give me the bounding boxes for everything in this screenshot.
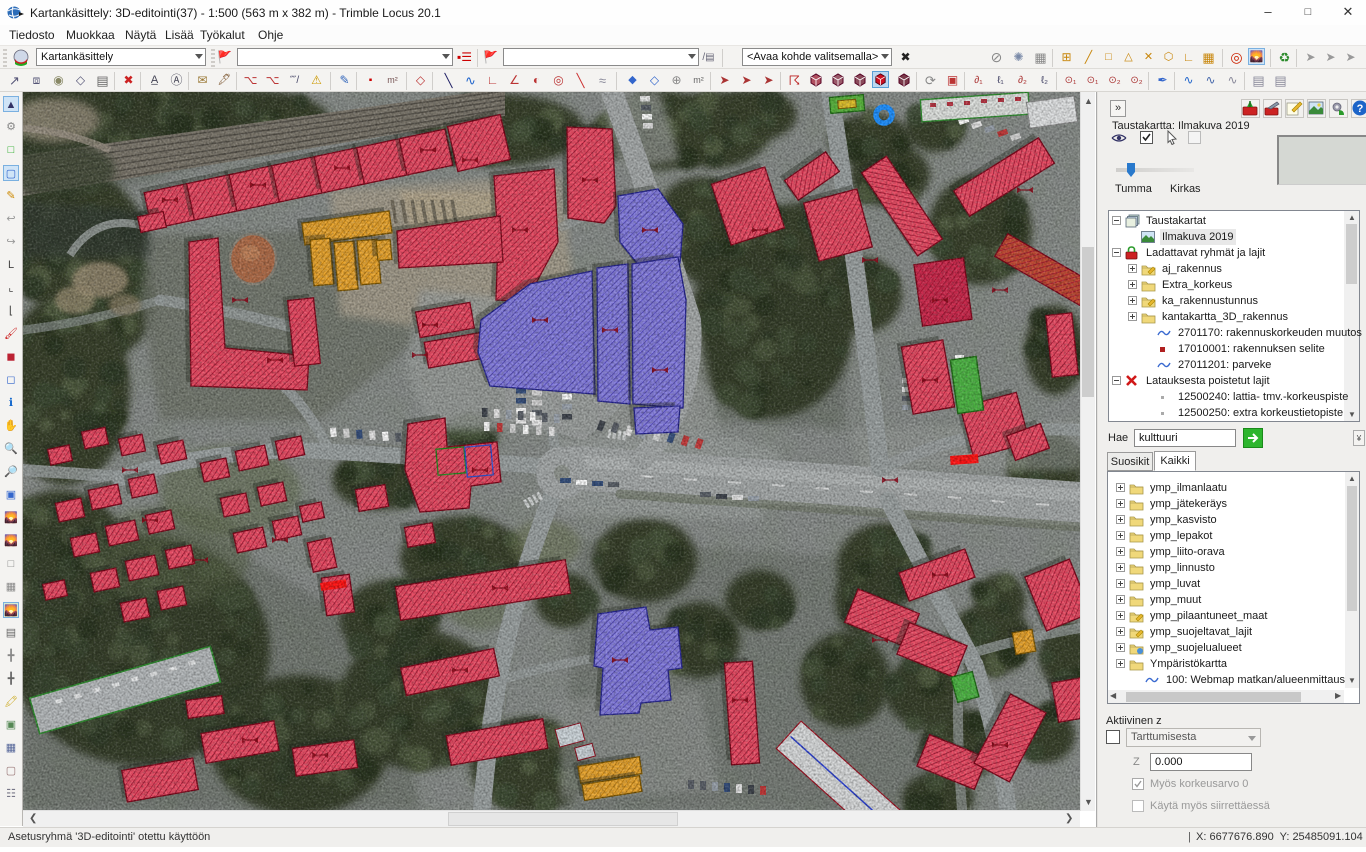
svg-text:?: ? (1357, 103, 1364, 115)
